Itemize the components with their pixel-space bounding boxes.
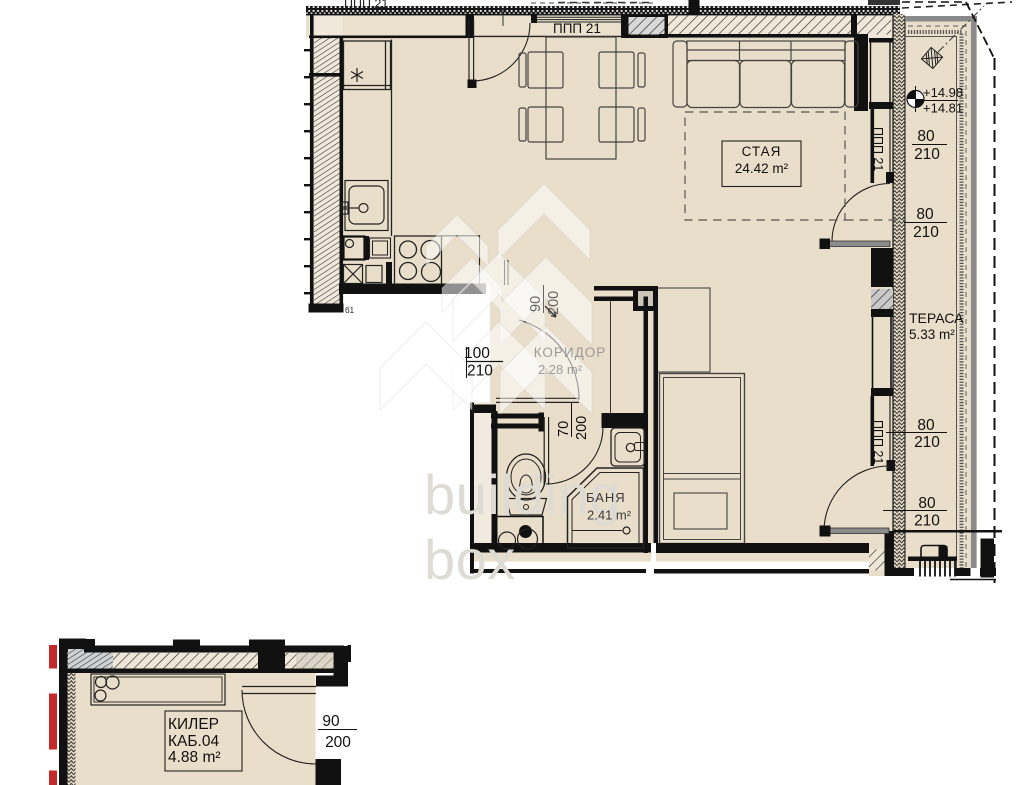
- svg-text:КИЛЕР: КИЛЕР: [168, 716, 219, 733]
- svg-text:СТАЯ: СТАЯ: [742, 144, 782, 159]
- svg-text:210: 210: [914, 146, 940, 163]
- svg-text:КАБ.04: КАБ.04: [168, 733, 219, 750]
- svg-text:200: 200: [574, 416, 590, 440]
- svg-text:24.42 m²: 24.42 m²: [735, 161, 789, 176]
- svg-text:90: 90: [322, 713, 340, 730]
- svg-text:+14.81: +14.81: [923, 101, 963, 116]
- svg-text:ППП 21: ППП 21: [344, 0, 388, 11]
- svg-text:ППП 21: ППП 21: [871, 127, 885, 171]
- svg-text:5.33 m²: 5.33 m²: [909, 327, 955, 342]
- svg-text:100: 100: [464, 345, 490, 362]
- svg-text:90: 90: [528, 296, 544, 312]
- svg-text:ППП 21: ППП 21: [553, 21, 601, 36]
- svg-text:210: 210: [914, 434, 940, 451]
- svg-text:б1: б1: [345, 306, 355, 315]
- svg-text:200: 200: [546, 291, 562, 315]
- svg-text:ТЕРАСА: ТЕРАСА: [909, 310, 964, 326]
- svg-text:4.88 m²: 4.88 m²: [168, 749, 221, 766]
- svg-text:box: box: [424, 528, 516, 591]
- svg-text:210: 210: [914, 513, 940, 530]
- svg-text:2.28 m²: 2.28 m²: [538, 362, 583, 377]
- svg-text:200: 200: [325, 734, 351, 751]
- svg-text:210: 210: [467, 363, 493, 380]
- svg-text:80: 80: [917, 417, 935, 434]
- svg-text:2.41 m²: 2.41 m²: [587, 508, 632, 523]
- svg-text:80: 80: [918, 495, 936, 512]
- svg-text:БАНЯ: БАНЯ: [586, 490, 626, 505]
- svg-text:80: 80: [916, 206, 934, 223]
- svg-text:+14.98: +14.98: [923, 85, 963, 100]
- svg-text:70: 70: [556, 421, 572, 437]
- svg-text:80: 80: [917, 128, 935, 145]
- svg-text:КОРИДОР: КОРИДОР: [534, 345, 607, 360]
- svg-text:ППП 21: ППП 21: [871, 420, 885, 464]
- svg-text:210: 210: [913, 224, 939, 241]
